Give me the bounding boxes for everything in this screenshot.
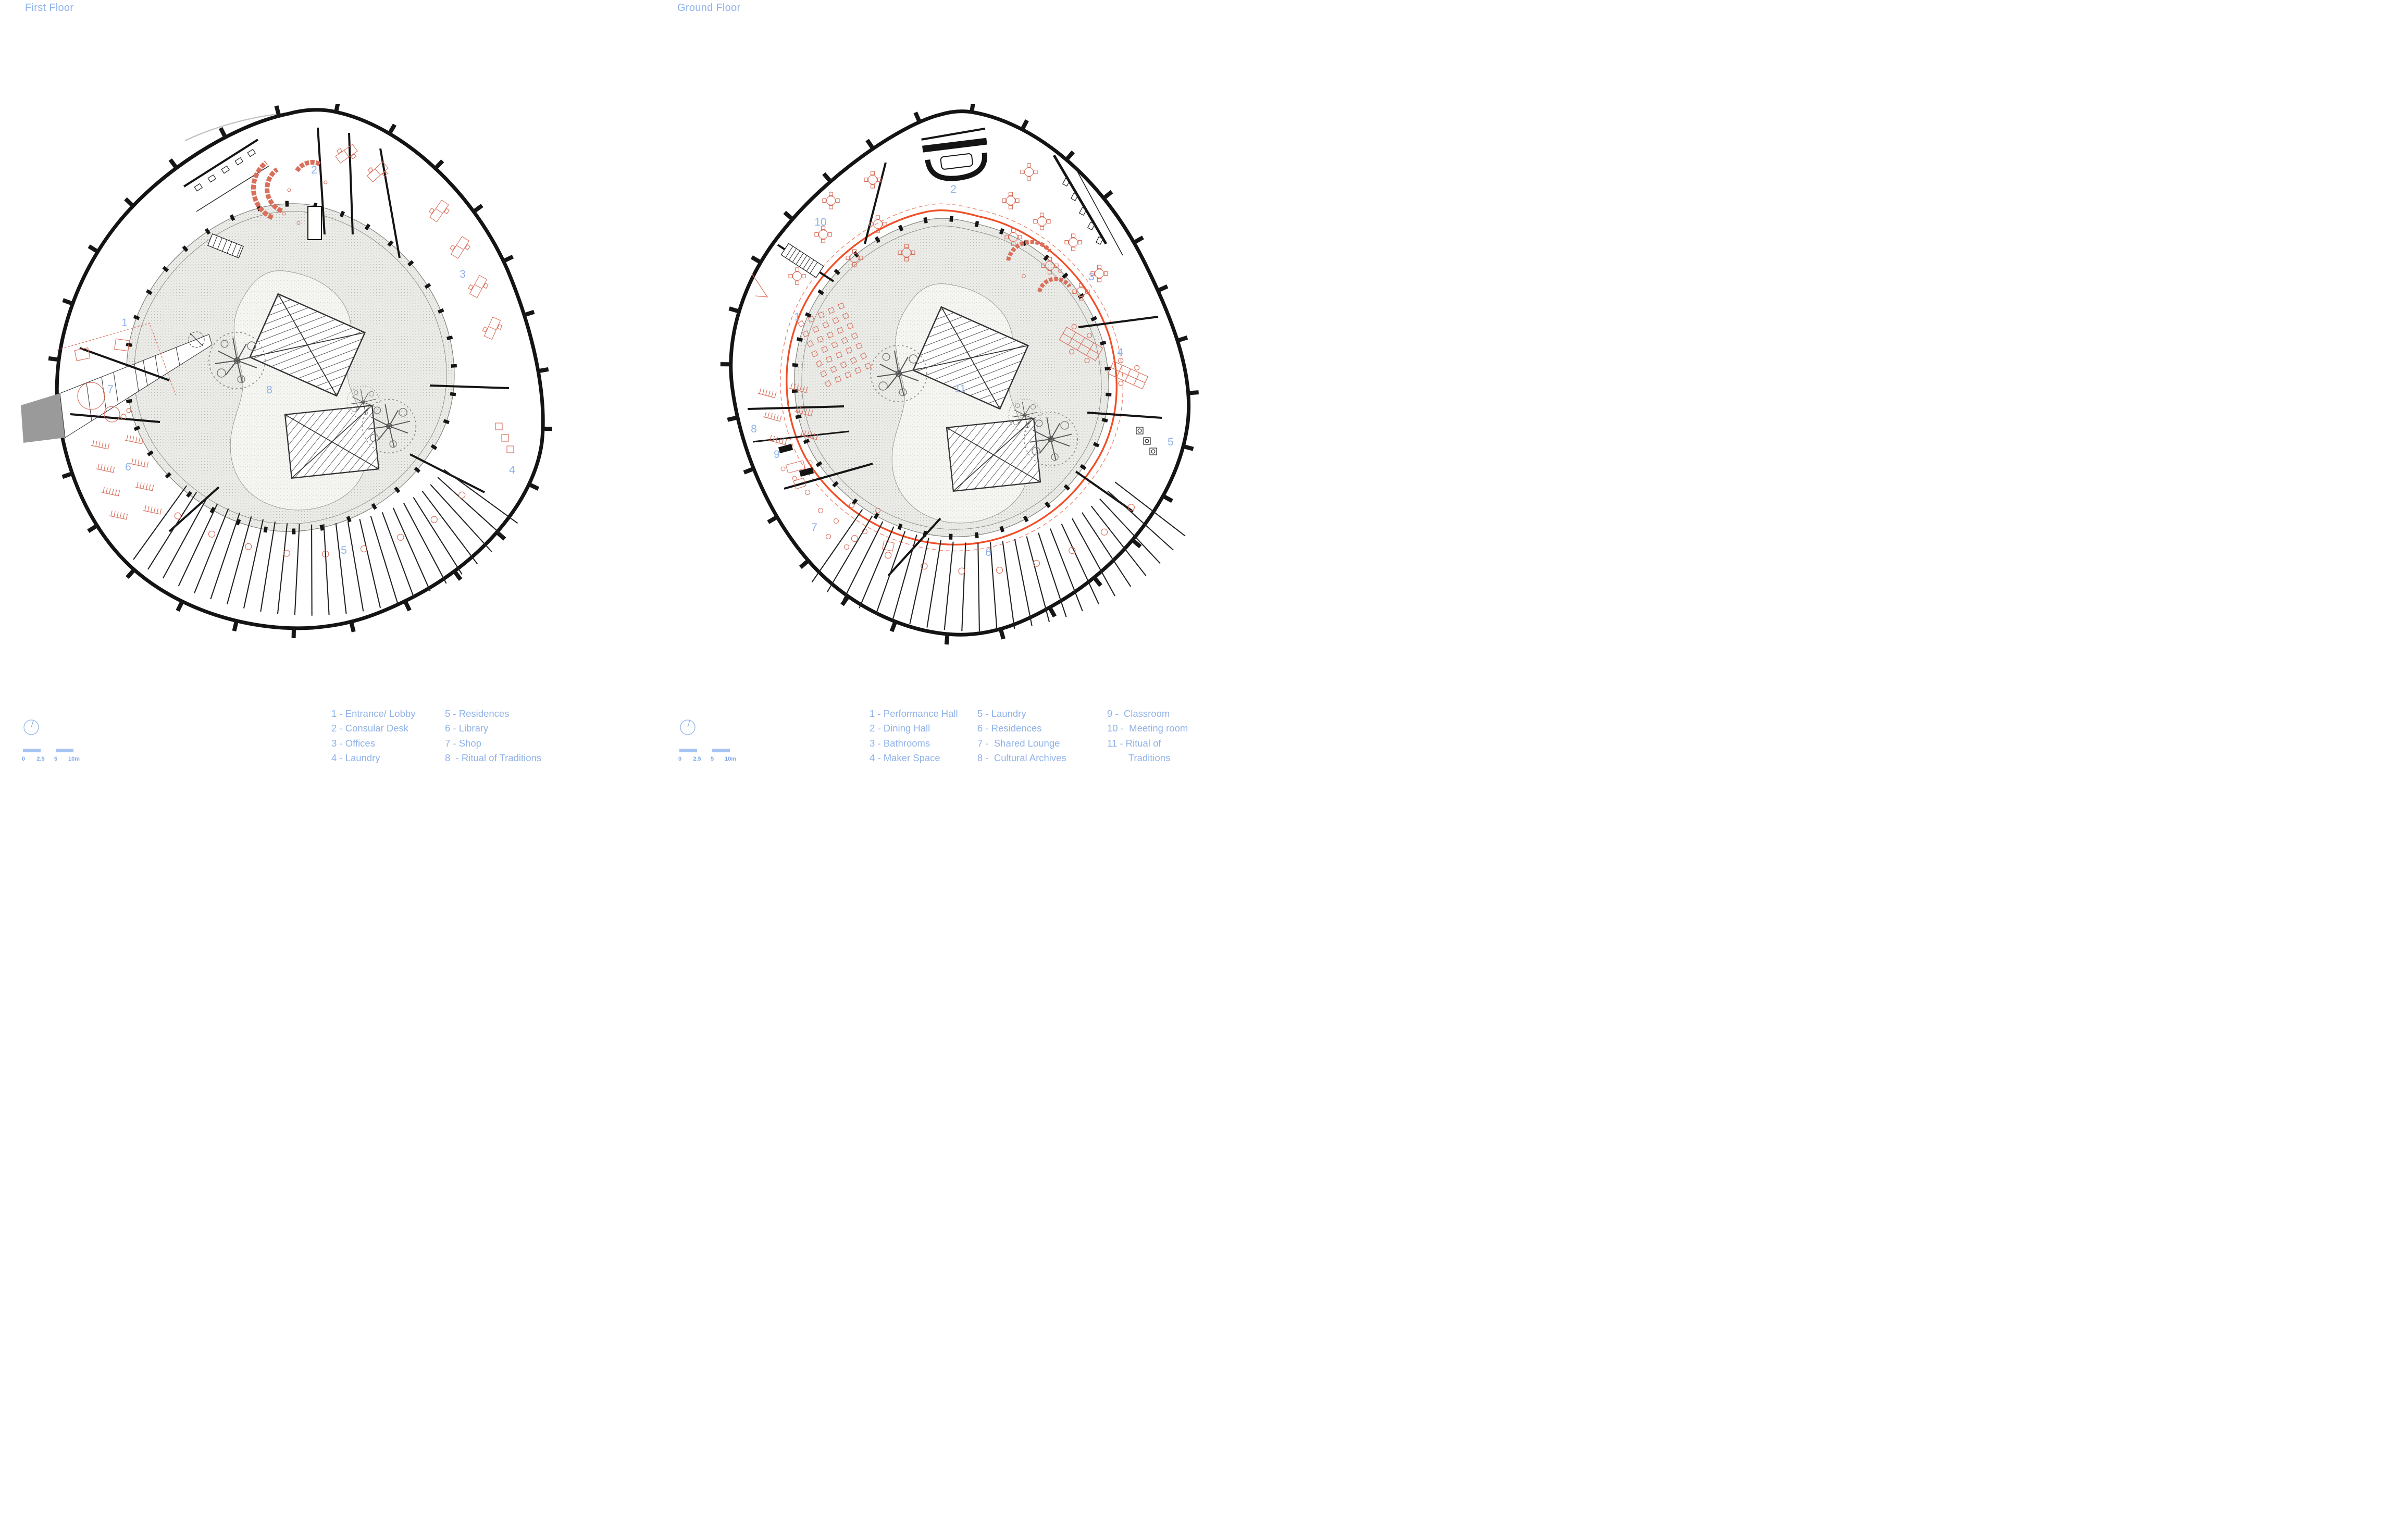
marker-1: 1 [121, 317, 128, 329]
ground-floor-plan: 1 2 3 4 5 6 7 8 9 10 11 [716, 104, 1204, 646]
canopy-line [185, 111, 335, 141]
first-floor-legend-col2: 5 - Residences 6 - Library 7 - Shop 8 - … [445, 706, 541, 764]
marker-3: 3 [460, 268, 466, 280]
marker-6: 6 [125, 461, 131, 473]
north-indicator [24, 720, 39, 735]
legend-item: 11 - Ritual of Traditions [1107, 736, 1188, 764]
drawing-sheet: First Floor Ground Floor [0, 0, 1204, 764]
scale-segment [56, 749, 73, 752]
scale-segment [23, 749, 41, 752]
scale-label: 2.5 [693, 756, 701, 762]
marker-8: 8 [751, 423, 757, 435]
legend-item: 7 - Shared Lounge [977, 736, 1066, 751]
legend-item: 9 - Classroom [1107, 706, 1188, 721]
marker-10: 10 [814, 216, 826, 228]
legend-item: 5 - Laundry [977, 706, 1066, 721]
marker-1: 1 [794, 311, 800, 323]
ground-floor-title: Ground Floor [677, 2, 740, 14]
first-floor-legend-col1: 1 - Entrance/ Lobby 2 - Consular Desk 3 … [331, 706, 415, 764]
legend-item: 2 - Consular Desk [331, 721, 415, 736]
piano-icon [752, 274, 767, 297]
scale-segment [679, 749, 697, 752]
legend-item: 3 - Offices [331, 736, 415, 751]
legend-item: 7 - Shop [445, 736, 541, 751]
ground-floor-legend-col1: 1 - Performance Hall 2 - Dining Hall 3 -… [870, 706, 958, 764]
legend-item: 10 - Meeting room [1107, 721, 1188, 736]
marker-4: 4 [509, 464, 515, 476]
scale-segment [712, 749, 730, 752]
legend-item: 4 - Maker Space [870, 751, 958, 764]
marker-7: 7 [107, 383, 114, 395]
scale-label: 2.5 [36, 756, 44, 762]
legend-item: 6 - Library [445, 721, 541, 736]
marker-3: 3 [1088, 271, 1095, 283]
marker-2: 2 [311, 164, 317, 176]
marker-6: 6 [985, 547, 991, 558]
legend-item: 6 - Residences [977, 721, 1066, 736]
marker-8: 8 [266, 384, 272, 396]
legend-item: 8 - Cultural Archives [977, 751, 1066, 764]
north-indicator [680, 720, 695, 735]
marker-5: 5 [1168, 436, 1174, 448]
consular-desk [308, 206, 321, 240]
legend-item: 8 - Ritual of Traditions [445, 751, 541, 764]
scale-label: 5 [711, 756, 714, 762]
legend-item: 2 - Dining Hall [870, 721, 958, 736]
legend-item: 3 - Bathrooms [870, 736, 958, 751]
marker-2: 2 [950, 183, 957, 195]
scale-label: 10m [68, 756, 80, 762]
scale-label: 0 [22, 756, 25, 762]
laundry-machines [1136, 427, 1157, 455]
scale-label: 0 [678, 756, 681, 762]
first-floor-plan: 1 2 3 4 5 6 7 8 [13, 104, 552, 638]
ground-floor-legend-col2: 5 - Laundry 6 - Residences 7 - Shared Lo… [977, 706, 1066, 764]
legend-item: 1 - Entrance/ Lobby [331, 706, 415, 721]
wc-stalls [194, 150, 255, 191]
scale-bar-ground-floor: 0 2.5 5 10m [676, 716, 744, 764]
scale-label: 10m [725, 756, 736, 762]
marker-11: 11 [954, 383, 966, 395]
ground-floor-legend-col3: 9 - Classroom 10 - Meeting room 11 - Rit… [1107, 706, 1188, 764]
marker-7: 7 [811, 522, 817, 533]
scale-bar-first-floor: 0 2.5 5 10m [20, 716, 88, 764]
legend-item: 5 - Residences [445, 706, 541, 721]
legend-item: 1 - Performance Hall [870, 706, 958, 721]
scale-label: 5 [54, 756, 57, 762]
legend-item: 4 - Laundry [331, 751, 415, 764]
stair-icon [781, 243, 823, 277]
marker-4: 4 [1117, 346, 1123, 358]
first-floor-title: First Floor [25, 2, 73, 14]
marker-5: 5 [341, 544, 347, 556]
kitchen-counter [921, 129, 991, 182]
marker-9: 9 [774, 449, 780, 461]
laundry-machines [495, 423, 514, 453]
